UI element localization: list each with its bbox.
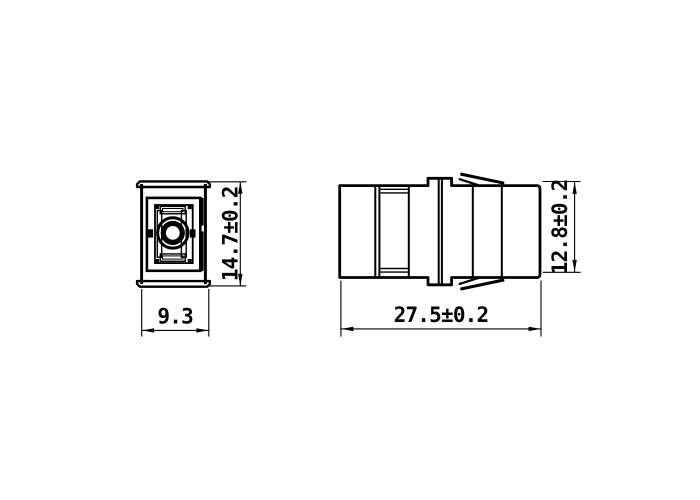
front-view-bottom-slot-inner [163,256,184,259]
dimension-front-width: 9.3 [142,289,209,337]
arrowhead [572,182,576,194]
front-width-dimension-label: 9.3 [157,305,193,329]
side-view-outline [340,178,540,284]
front-view-top-lip [137,181,210,187]
front-view [137,181,210,286]
front-view-bottom-lip [137,281,210,287]
side-view [340,174,540,289]
front-height-dimension-label: 14.7±0.2 [219,186,243,281]
arrowhead [341,327,353,331]
dimension-side-length: 27.5±0.2 [341,281,541,337]
front-view-left-key [148,229,154,237]
ferrule-bore [166,226,180,240]
dimension-front-height: 14.7±0.2 [209,182,247,286]
arrowhead [529,327,541,331]
side-view-bottom-latch [460,278,505,289]
technical-drawing-canvas: 14.7±0.2 9.3 27.5±0.2 12.8±0.2 [0,0,700,500]
side-view-top-latch [460,174,505,185]
arrowhead [142,328,154,332]
side-view-sleeve-lines [380,189,408,272]
side-height-dimension-label: 12.8±0.2 [548,180,572,275]
side-length-dimension-label: 27.5±0.2 [394,303,489,327]
front-view-top-slot-inner [163,209,184,212]
dimension-side-height: 12.8±0.2 [543,180,581,275]
side-view-parting-lines [439,179,442,284]
technical-drawing-page: 14.7±0.2 9.3 27.5±0.2 12.8±0.2 [0,0,700,500]
arrowhead [572,260,576,272]
arrowhead [196,328,208,332]
front-view-right-key [190,229,196,237]
ferrule-sleeve [158,218,188,248]
